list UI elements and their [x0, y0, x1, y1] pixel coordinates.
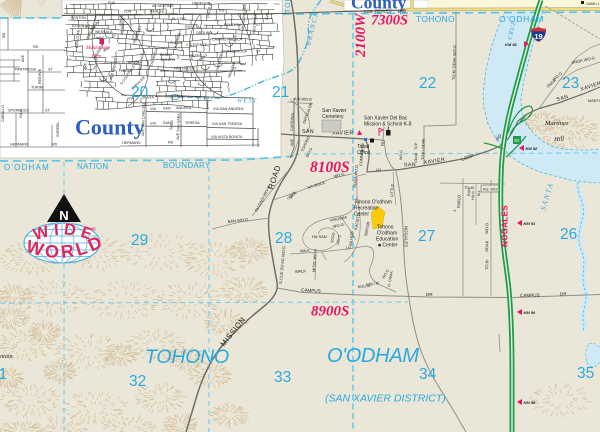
svg-text:SORREL: SORREL	[56, 122, 60, 137]
svg-text:7300S: 7300S	[371, 13, 408, 29]
svg-text:RD: RD	[219, 9, 225, 13]
svg-text:21: 21	[272, 84, 289, 101]
svg-text:AVE: AVE	[83, 62, 88, 70]
svg-text:KM 91: KM 91	[524, 221, 537, 226]
svg-text:PLA DEL: PLA DEL	[172, 17, 187, 21]
svg-text:ODAK: ODAK	[414, 152, 418, 163]
svg-text:AVE: AVE	[290, 138, 294, 146]
svg-text:O'ODHAM: O'ODHAM	[4, 163, 50, 172]
svg-text:O'ODHAM: O'ODHAM	[499, 14, 544, 24]
svg-text:VIA SAN ANDREA: VIA SAN ANDREA	[213, 107, 244, 111]
svg-text:PASEO: PASEO	[160, 53, 172, 57]
svg-text:KU:: KU:	[477, 190, 481, 196]
svg-text:ODAK: ODAK	[484, 240, 489, 252]
svg-text:GROUND: GROUND	[196, 31, 212, 35]
svg-text:19: 19	[534, 32, 542, 41]
svg-text:CAMINO FRESCA: CAMINO FRESCA	[212, 38, 243, 42]
svg-text:WEST: WEST	[237, 99, 258, 105]
svg-text:ST: ST	[48, 68, 53, 72]
svg-text:AV DESTINO: AV DESTINO	[152, 4, 174, 8]
svg-text:DR: DR	[426, 292, 433, 297]
svg-text:Martinez: Martinez	[544, 120, 569, 127]
svg-text:22: 22	[419, 75, 436, 92]
svg-text:TORIM: TORIM	[31, 86, 43, 90]
svg-text:8900S: 8900S	[311, 304, 349, 320]
svg-text:ST: ST	[45, 109, 50, 113]
svg-text:NATION: NATION	[77, 162, 108, 171]
svg-text:Maldonado: Maldonado	[85, 46, 110, 51]
svg-text:TOHONO: TOHONO	[145, 346, 229, 368]
svg-text:2100W: 2100W	[353, 12, 369, 58]
svg-text:AVE: AVE	[233, 34, 238, 42]
svg-text:C. LEVENTE: C. LEVENTE	[186, 43, 208, 47]
svg-text:WALK: WALK	[295, 268, 307, 274]
svg-text:VIA: VIA	[150, 107, 156, 111]
svg-text:EXTON LN: EXTON LN	[72, 24, 90, 28]
svg-text:VIA SAN TERESA: VIA SAN TERESA	[212, 122, 243, 126]
svg-text:O'ODHAM: O'ODHAM	[327, 345, 419, 367]
svg-text:Hill: Hill	[553, 136, 564, 143]
svg-text:Office: Office	[357, 150, 370, 156]
svg-text:County: County	[75, 115, 145, 140]
svg-text:ST: ST	[232, 67, 237, 71]
svg-text:MARTIN: MARTIN	[588, 99, 600, 103]
svg-text:PABLO: PABLO	[456, 195, 461, 208]
svg-text:DR: DR	[560, 292, 567, 297]
svg-text:TO:KI ODAK: TO:KI ODAK	[421, 138, 426, 160]
svg-text:BOUNDARY: BOUNDARY	[163, 161, 211, 170]
svg-text:BONITO: BONITO	[161, 58, 175, 62]
svg-text:PARTRIDGE: PARTRIDGE	[174, 67, 196, 71]
svg-text:REEHVE: REEHVE	[38, 68, 42, 84]
svg-text:33: 33	[274, 369, 291, 386]
svg-text:HERMANS: HERMANS	[122, 141, 141, 145]
svg-text:(SAN XAVIER DISTRICT): (SAN XAVIER DISTRICT)	[325, 393, 446, 405]
svg-text:NOGALES: NOGALES	[501, 205, 510, 247]
svg-text:TOP: TOP	[414, 142, 418, 150]
svg-text:WA:K: WA:K	[300, 248, 311, 254]
svg-text:Center: Center	[354, 212, 369, 218]
svg-text:WO:G: WO:G	[484, 223, 489, 234]
svg-text:CABALLO: CABALLO	[1, 105, 5, 122]
svg-text:PARTRIDGE: PARTRIDGE	[15, 68, 37, 72]
svg-text:FENTON: FENTON	[71, 16, 86, 20]
svg-text:ST: ST	[256, 50, 261, 54]
svg-text:23: 23	[562, 75, 579, 92]
svg-text:PELSTON: PELSTON	[224, 23, 241, 27]
svg-text:GILA: GILA	[19, 109, 23, 118]
svg-text:DOROTEA: DOROTEA	[165, 95, 184, 99]
svg-text:LOS: LOS	[124, 10, 132, 14]
svg-text:HA SAN: HA SAN	[312, 234, 327, 239]
svg-text:NOGALES: NOGALES	[404, 226, 409, 247]
svg-text:CAMPUS: CAMPUS	[301, 288, 321, 294]
svg-text:LITTLE: LITTLE	[389, 183, 395, 197]
svg-text:VIA VISTA BONITA: VIA VISTA BONITA	[211, 135, 243, 139]
svg-text:Elem: Elem	[91, 53, 102, 58]
svg-text:AVE: AVE	[21, 54, 25, 62]
svg-text:REALES: REALES	[150, 10, 165, 14]
svg-text:KM 92: KM 92	[526, 146, 539, 151]
svg-text:FHA: FHA	[108, 1, 116, 5]
svg-text:20: 20	[131, 84, 149, 101]
svg-text:29: 29	[131, 232, 148, 249]
svg-text:■ Center: ■ Center	[378, 243, 398, 249]
svg-text:KM 90: KM 90	[524, 310, 537, 315]
svg-text:RD: RD	[52, 143, 58, 147]
svg-text:GAMU LI: GAMU LI	[586, 2, 600, 6]
svg-text:LN: LN	[376, 168, 381, 172]
svg-text:HU:N: HU:N	[471, 191, 475, 200]
svg-text:32: 32	[129, 373, 146, 390]
svg-text:RD: RD	[33, 45, 39, 49]
svg-text:92: 92	[515, 138, 521, 143]
svg-text:WO:G: WO:G	[399, 150, 403, 160]
svg-text:SAN: SAN	[163, 107, 171, 111]
svg-text:VIA: VIA	[150, 122, 156, 126]
svg-text:HERMANS: HERMANS	[10, 143, 29, 147]
svg-text:35: 35	[577, 365, 594, 382]
svg-text:28: 28	[275, 230, 292, 247]
svg-text:TOHONO: TOHONO	[416, 14, 455, 24]
svg-text:TERESA: TERESA	[185, 121, 200, 125]
svg-text:8100S: 8100S	[310, 159, 350, 176]
svg-text:KM 92: KM 92	[505, 42, 518, 47]
svg-text:LN: LN	[346, 246, 351, 250]
svg-text:®: ®	[92, 226, 96, 233]
svg-text:AVE: AVE	[265, 12, 270, 20]
svg-text:RD: RD	[380, 140, 386, 146]
svg-text:RD: RD	[168, 141, 174, 145]
svg-text:TO:KI: TO:KI	[484, 259, 489, 270]
svg-text:WESSALA: WESSALA	[95, 30, 113, 34]
svg-text:31: 31	[0, 366, 7, 383]
svg-text:RD: RD	[2, 32, 6, 38]
svg-text:Cemetery: Cemetery	[322, 114, 344, 120]
svg-text:Black Mountain: Black Mountain	[0, 354, 13, 360]
svg-text:26: 26	[560, 226, 577, 243]
svg-text:CARDINAL: CARDINAL	[290, 112, 295, 131]
svg-text:RUN: RUN	[467, 188, 471, 196]
svg-text:J.: J.	[452, 209, 457, 212]
svg-text:CRANBROOK: CRANBROOK	[224, 50, 248, 54]
svg-text:ROSETA: ROSETA	[185, 25, 200, 29]
svg-text:KM 89: KM 89	[524, 400, 537, 405]
svg-text:34: 34	[419, 366, 437, 383]
svg-text:ANDREA: ANDREA	[176, 106, 192, 110]
svg-text:27: 27	[418, 228, 435, 245]
svg-text:TOHON: TOHON	[285, 0, 292, 13]
svg-text:SAN: SAN	[302, 129, 314, 135]
svg-text:CAMPUS: CAMPUS	[520, 293, 540, 298]
